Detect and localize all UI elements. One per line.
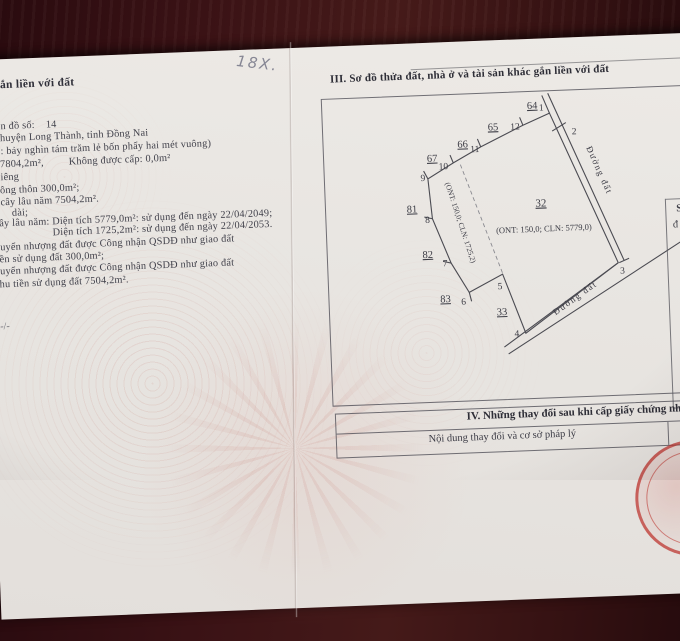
- vertex-label-7: 7: [443, 259, 448, 269]
- photo-of-land-certificate: { "photo": { "handwritten_note": "18X.",…: [0, 0, 680, 480]
- section-iv-column-header: Nội dung thay đổi và cơ sở pháp lý: [337, 425, 668, 449]
- road-right-outer: [548, 91, 624, 264]
- edge-box-fragment-1: S: [676, 203, 680, 214]
- left-page-line-transfer-1: uyển nhượng đất được Công nhận QSDĐ như …: [0, 233, 235, 253]
- vertex-label-4: 4: [514, 329, 519, 339]
- vertex-10-tick: [450, 155, 453, 163]
- vertex-label-10: 10: [439, 162, 449, 172]
- vertex-label-1: 1: [539, 103, 544, 113]
- vertex-label-2: 2: [572, 127, 577, 137]
- paper-fold-crease: [289, 42, 298, 617]
- left-page-line-map-number: n đồ số: 14: [0, 119, 56, 132]
- parcel-area-label: (ONT: 150,0; CLN: 5779,0): [496, 222, 592, 236]
- vertex-12-tick: [520, 117, 523, 125]
- vertex-label-12: 12: [510, 122, 520, 132]
- left-page-line-cln-area: cây lâu năm 7504,2m².: [0, 194, 99, 209]
- left-page-line-fee-7504: hu tiền sử dụng đất 7504,2m².: [0, 274, 129, 290]
- vertex-label-8: 8: [425, 216, 430, 226]
- adjacent-parcel-65: 65: [488, 122, 499, 133]
- vertex-label-9: 9: [420, 174, 425, 184]
- parcel-number-32: 32: [535, 197, 546, 209]
- road-bottom-lower: [505, 241, 680, 354]
- adjacent-parcel-33: 33: [497, 307, 508, 318]
- vertex-6-tick: [469, 292, 471, 301]
- adjacent-parcel-66: 66: [457, 139, 468, 150]
- strip-area-label: (ONT: 150,0; CLN: 1725,2): [443, 181, 478, 264]
- road-right-end-tick: [619, 258, 629, 262]
- official-stamp: [623, 427, 680, 568]
- adjacent-parcel-64: 64: [527, 101, 539, 112]
- section-iv-table: IV. Những thay đổi sau khi cấp giấy chứn…: [335, 399, 680, 458]
- land-use-split-dashed-line: [460, 163, 502, 274]
- road-label-right: Đường đất: [584, 144, 614, 195]
- edge-box-fragment-2: đ: [673, 219, 679, 230]
- page-divider-mark: -/-: [0, 321, 10, 332]
- adjacent-parcel-83: 83: [440, 294, 451, 305]
- parcel-diagram: 64 65 66 67 81 82 83 33 32 (ONT: 150,0; …: [322, 86, 680, 406]
- adjacent-parcel-67: 67: [427, 154, 438, 165]
- adjacent-parcel-82: 82: [422, 250, 433, 261]
- handwritten-note: 18X.: [235, 52, 279, 75]
- section-iv-title: IV. Những thay đổi sau khi cấp giấy chứn…: [336, 402, 680, 428]
- vertex-label-11: 11: [470, 145, 480, 155]
- left-page-line-rieng: iêng: [0, 172, 19, 184]
- parcel-diagram-box: 64 65 66 67 81 82 83 33 32 (ONT: 150,0; …: [321, 85, 680, 407]
- adjacent-parcel-81: 81: [407, 204, 418, 215]
- vertex-label-6: 6: [461, 298, 466, 308]
- vertex-label-3: 3: [620, 266, 625, 276]
- certificate-paper: 18X. ắn liền với đất n đồ số: 14 huyện L…: [0, 30, 680, 619]
- left-page-heading-fragment: ắn liền với đất: [0, 76, 75, 91]
- vertex-label-5: 5: [498, 282, 503, 292]
